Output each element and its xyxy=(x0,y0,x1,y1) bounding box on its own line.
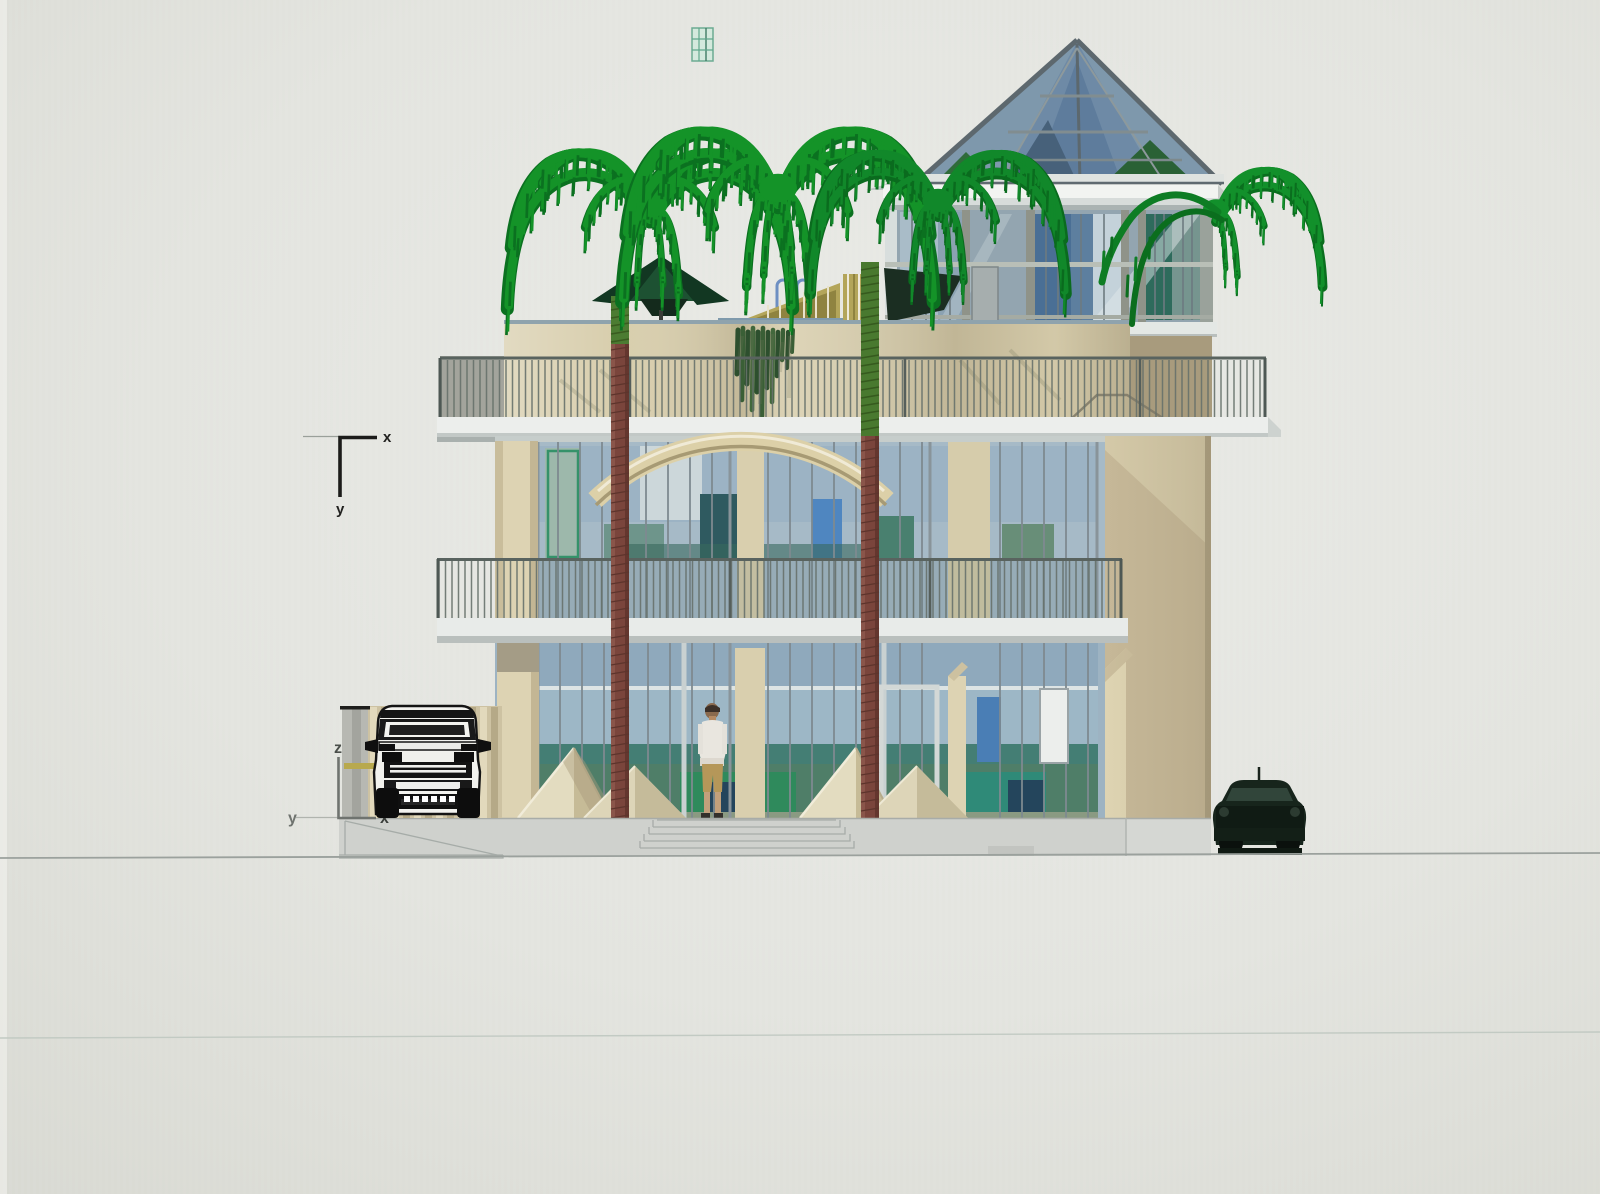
svg-text:x: x xyxy=(383,429,392,446)
svg-text:y: y xyxy=(288,810,297,827)
svg-text:z: z xyxy=(334,740,342,757)
svg-text:y: y xyxy=(336,501,345,518)
